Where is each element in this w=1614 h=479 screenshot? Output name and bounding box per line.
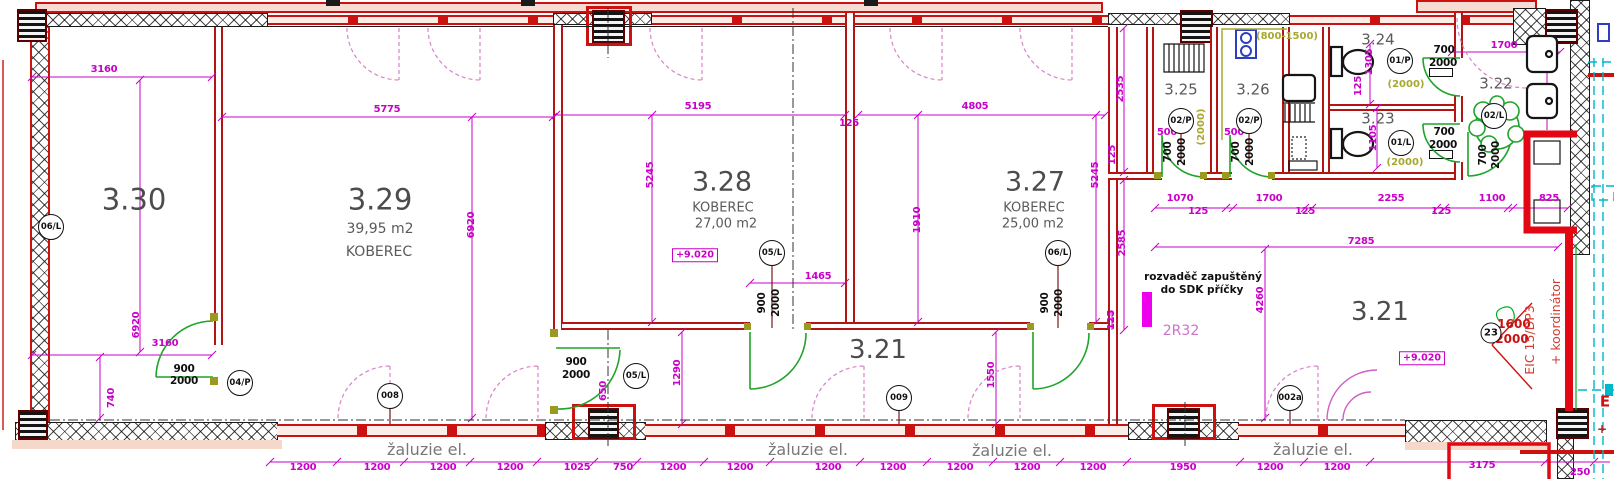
- door-size-label: 2000: [1429, 140, 1457, 151]
- partition-wall: [1210, 27, 1218, 172]
- door-size-label: 700: [1163, 141, 1174, 162]
- dimension-label: 125: [1188, 207, 1208, 217]
- dimension-label: 125: [1295, 207, 1315, 217]
- dimension-label: 1200: [727, 463, 754, 473]
- dimension-label: 2585: [1118, 230, 1128, 257]
- room-number-label: 3.29: [348, 186, 413, 215]
- dimension-label: 3160: [152, 339, 179, 349]
- door-tag: 01/P: [1387, 48, 1413, 74]
- adjacent-unit-box: [1592, 186, 1614, 200]
- wall-finish: [12, 440, 282, 449]
- door-tag: 01/L: [1388, 130, 1414, 156]
- room-number-label: 3.30: [102, 186, 167, 215]
- dimension-label: 1200: [1080, 463, 1107, 473]
- coordinator-note: EIC 15/DP3: [1524, 305, 1537, 375]
- blinds-note: žaluzie el.: [972, 443, 1052, 459]
- red-annotation: +: [1597, 423, 1607, 435]
- column: [1545, 9, 1578, 44]
- room-number-label: 3.21: [1351, 299, 1409, 325]
- dimension-label: 250: [1570, 468, 1590, 478]
- dimension-label: 3175: [1469, 461, 1496, 471]
- dimension-label: 7285: [1348, 237, 1375, 247]
- door-tag: 008: [377, 383, 403, 409]
- dimension-label: 1200: [1014, 463, 1041, 473]
- room-number-label: 3.27: [1005, 169, 1065, 196]
- window-band: [645, 424, 1128, 437]
- dimension-label: 2535: [1116, 76, 1126, 103]
- room-number-label: 3.24: [1361, 33, 1394, 48]
- dimension-label: 1100: [1479, 194, 1506, 204]
- floorplan-canvas: 3.303.2939,95 m2KOBEREC3.28KOBEREC27,00 …: [0, 0, 1614, 479]
- door-tag: 23: [1481, 323, 1502, 344]
- fixture-dimension-label: (800-1500): [1256, 32, 1318, 42]
- dimension-label: 4260: [1256, 287, 1266, 314]
- exterior-wall: [15, 422, 278, 441]
- partition-wall: [214, 27, 223, 345]
- door-tag: 05/L: [759, 240, 785, 266]
- window-band: [1238, 424, 1405, 437]
- room-number-label: 3.22: [1479, 77, 1512, 92]
- room-info-label: KOBEREC: [692, 202, 754, 215]
- partition-wall: [562, 322, 750, 330]
- window-band: [277, 424, 545, 437]
- parapet-band: [35, 2, 1103, 13]
- window-band: [268, 15, 553, 25]
- dimension-label: 825: [1539, 194, 1559, 204]
- door-size-label: 2000: [1245, 138, 1256, 166]
- exterior-wall: [1405, 420, 1547, 443]
- band-tick: [326, 0, 340, 6]
- partition-wall: [1108, 172, 1162, 180]
- coordinator-note: + koordinátor: [1550, 279, 1563, 365]
- room-number-label: 3.25: [1164, 83, 1197, 98]
- dimension-label: 5775: [374, 105, 401, 115]
- dimension-label: 125: [1107, 310, 1117, 330]
- partition-wall: [553, 25, 563, 330]
- band-tick: [521, 0, 535, 6]
- dimension-label: 1550: [987, 362, 997, 389]
- circuit-label: 2R32: [1163, 324, 1199, 338]
- dimension-label: 750: [613, 463, 633, 473]
- door-size-label: 2000: [170, 376, 198, 387]
- electrical-note: rozvaděč zapuštěný: [1144, 272, 1262, 283]
- room-info-label: KOBEREC: [346, 245, 412, 259]
- window-swing-arcs: [338, 18, 1527, 418]
- dimension-label: 1070: [1167, 194, 1194, 204]
- dimension-label: 650: [599, 381, 609, 401]
- window-band: [1290, 15, 1513, 25]
- blinds-note: žaluzie el.: [387, 442, 467, 458]
- partition-wall: [1454, 162, 1463, 180]
- wall-niche: [1429, 68, 1453, 77]
- door-size-label: 2000: [1177, 138, 1188, 166]
- dimension-label: 1290: [673, 360, 683, 387]
- dimension-label: 125: [1354, 76, 1364, 96]
- dimension-label: 6920: [132, 312, 142, 339]
- dimension-label: 1950: [1170, 463, 1197, 473]
- door-tag: 06/L: [38, 214, 64, 240]
- door-size-label: 700: [1478, 144, 1489, 165]
- dimension-label: 1200: [364, 463, 391, 473]
- room-info-label: 27,00 m2: [695, 218, 757, 231]
- blinds-note: žaluzie el.: [768, 442, 848, 458]
- door-size-label: 2000: [771, 289, 782, 317]
- partition-wall: [1272, 172, 1454, 180]
- door-tag: 05/L: [623, 363, 649, 389]
- door-tag: 009: [886, 385, 912, 411]
- door-size-label: 700: [1433, 45, 1454, 56]
- dimension-label: 1305: [1365, 49, 1375, 76]
- band-tick: [864, 0, 878, 6]
- exterior-wall: [1513, 8, 1546, 45]
- window-band: [652, 15, 1108, 25]
- red-annotation: E: [1600, 395, 1610, 410]
- door-swing-solid: [1327, 370, 1377, 420]
- door-tag: 02/L: [1481, 103, 1507, 129]
- dimension-label: 1200: [880, 463, 907, 473]
- appliance-bar: [1289, 161, 1317, 170]
- shaft-boxes: [1534, 141, 1560, 223]
- room-info-label: 25,00 m2: [1002, 218, 1064, 231]
- radiator-icon: [1164, 44, 1204, 72]
- dimension-label: 5245: [646, 162, 656, 189]
- dimension-label: 1200: [947, 463, 974, 473]
- door-tag: 04/P: [227, 370, 253, 396]
- room-info-label: 39,95 m2: [346, 222, 413, 236]
- dimension-label: 1200: [497, 463, 524, 473]
- dimension-label: 1025: [564, 463, 591, 473]
- door-size-label: 700: [1231, 141, 1242, 162]
- level-mark: +9.020: [672, 248, 718, 262]
- fixture-dimension-label: (2000): [1197, 109, 1207, 146]
- fixture-dimension-label: (2000): [1388, 80, 1425, 90]
- partition-wall: [1322, 27, 1330, 180]
- appliance-dashed: [1292, 137, 1306, 159]
- column: [1180, 10, 1213, 43]
- dimension-label: 125: [1108, 145, 1118, 165]
- room-number-label: 3.26: [1236, 83, 1269, 98]
- dimension-label: 1700: [1256, 194, 1283, 204]
- dimension-label: 125: [839, 119, 859, 129]
- dimension-label: 1200: [815, 463, 842, 473]
- door-size-label: 2000: [1429, 58, 1457, 69]
- door-size-label: 2000: [1054, 289, 1065, 317]
- dimension-label: 6920: [467, 212, 477, 239]
- partition-wall: [1204, 172, 1232, 180]
- fixture-dimension-label: (2000): [1387, 158, 1424, 168]
- column: [588, 408, 619, 439]
- dimension-label: 3160: [91, 65, 118, 75]
- partition-wall: [1454, 96, 1463, 122]
- wall-finish: [1405, 442, 1547, 450]
- room-number-label: 3.21: [849, 337, 907, 363]
- door-size-label: 2000: [562, 370, 590, 381]
- dimension-label: 5245: [1091, 162, 1101, 189]
- door-tag: 002a: [1277, 385, 1303, 411]
- door-size-label: 900: [173, 364, 194, 375]
- dimension-label: 4805: [962, 102, 989, 112]
- door-tag: 06/L: [1045, 240, 1071, 266]
- door-size-label: 900: [565, 357, 586, 368]
- dimension-label: 740: [107, 388, 117, 408]
- wall-niche: [1429, 150, 1453, 159]
- column: [17, 9, 47, 42]
- wall-face-line: [47, 26, 1108, 27]
- dimension-label: 1200: [430, 463, 457, 473]
- level-mark: +9.020: [1399, 351, 1445, 365]
- door-size-label: 900: [757, 292, 768, 313]
- column: [18, 410, 48, 440]
- dimension-label: 2255: [1378, 194, 1405, 204]
- dimension-label: 1910: [913, 207, 923, 234]
- partition-wall: [1282, 27, 1290, 172]
- electrical-note: do SDK příčky: [1161, 285, 1244, 296]
- dimension-label: 1200: [660, 463, 687, 473]
- electrical-panel: [1142, 292, 1152, 327]
- dimension-label: 1700: [1491, 41, 1518, 51]
- dimension-label: 1200: [290, 463, 317, 473]
- partition-wall: [1454, 13, 1463, 58]
- basin-icon: [1236, 30, 1256, 58]
- dimension-label: 1105: [1369, 125, 1379, 152]
- door-size-label: 700: [1433, 127, 1454, 138]
- room-number-label: 3.28: [692, 169, 752, 196]
- wall-segment-red: [1565, 233, 1573, 411]
- exterior-wall: [46, 13, 268, 27]
- column: [1556, 408, 1589, 439]
- column: [1167, 408, 1200, 439]
- dimension-label: 1200: [1257, 463, 1284, 473]
- dimension-label: 125: [1431, 207, 1451, 217]
- door-size-label: 2000: [1491, 141, 1502, 169]
- partition-wall: [845, 13, 855, 327]
- blinds-note: žaluzie el.: [1273, 442, 1353, 458]
- partition-wall: [1146, 27, 1154, 172]
- fixture-blue: [1598, 24, 1609, 41]
- door-size-label: 900: [1040, 292, 1051, 313]
- partition-wall: [806, 322, 1030, 330]
- door-tag: 02/P: [1168, 108, 1194, 134]
- dimension-label: 1200: [1324, 463, 1351, 473]
- dimension-label: 1465: [805, 272, 832, 282]
- room-info-label: KOBEREC: [1003, 202, 1065, 215]
- dimension-label: 5195: [685, 102, 712, 112]
- door-tag: 02/P: [1236, 108, 1262, 134]
